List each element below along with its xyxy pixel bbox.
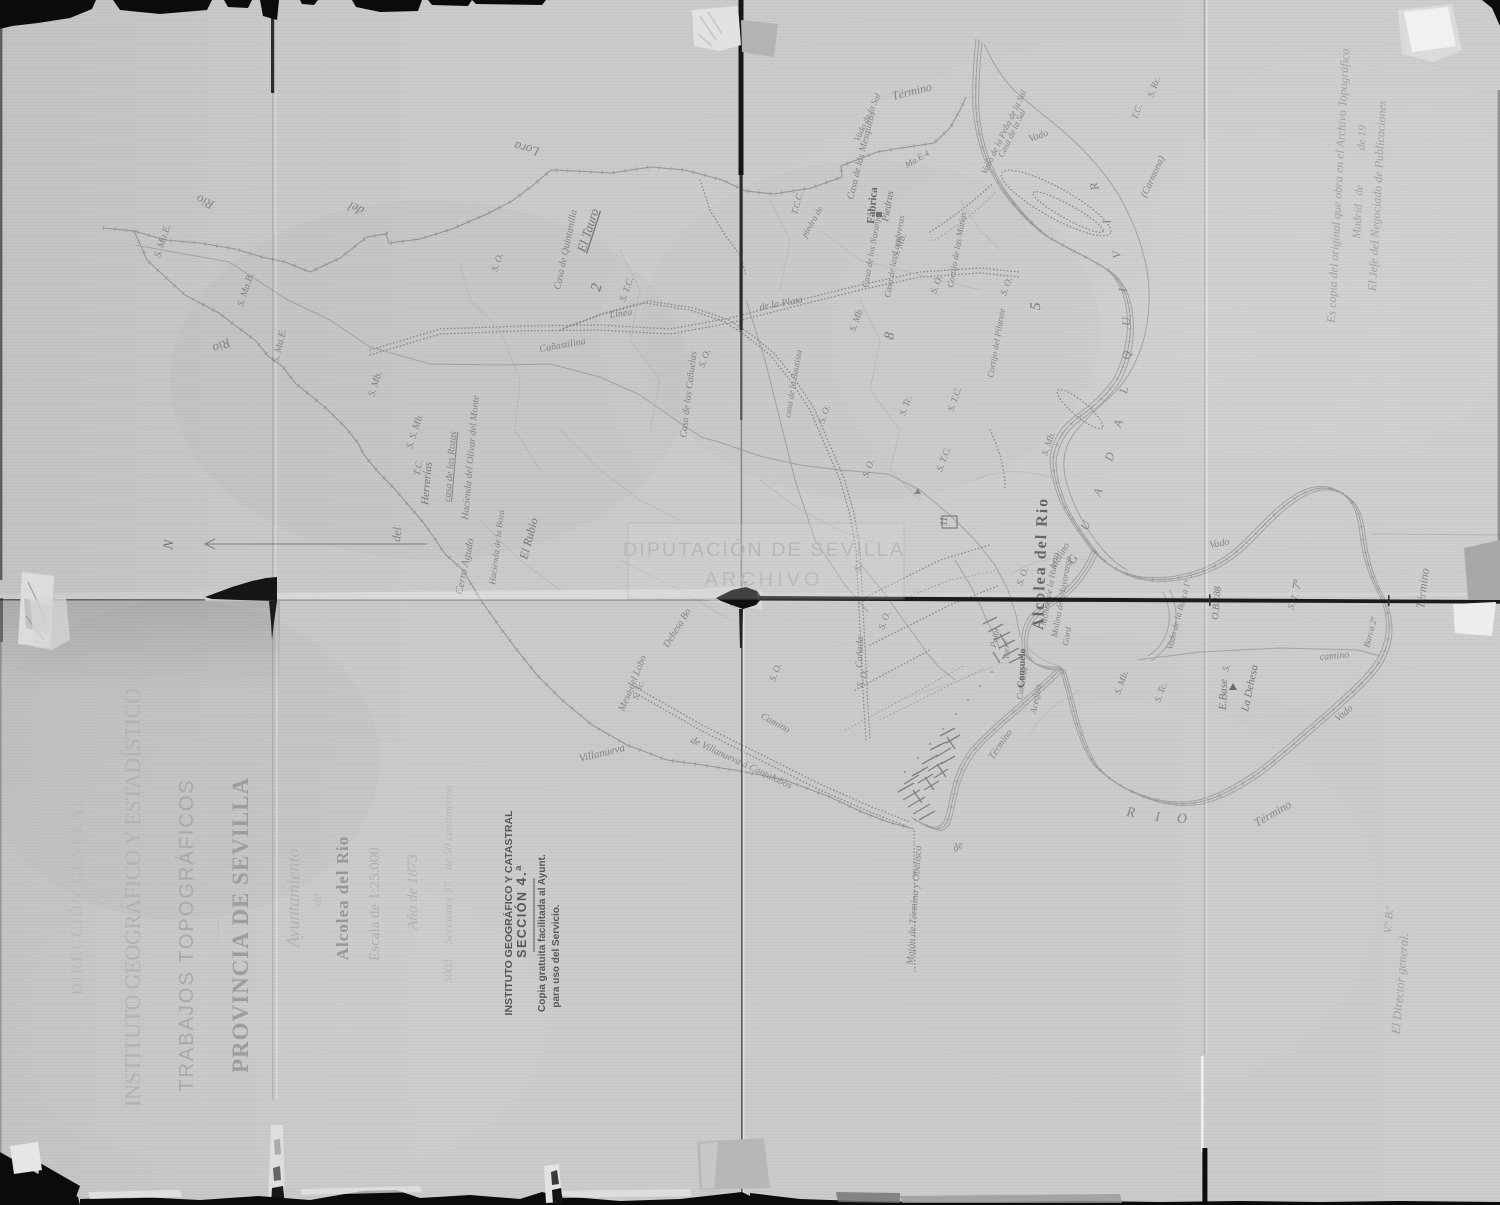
- svg-text:Término: Término: [890, 79, 933, 102]
- svg-text:Vado: Vado: [1027, 128, 1050, 145]
- svg-text:Vado: Vado: [1209, 537, 1231, 551]
- svg-text:Alcolea del Rio: Alcolea del Rio: [333, 836, 352, 961]
- svg-text:Consuelo: Consuelo: [1016, 648, 1028, 688]
- svg-text:de: de: [309, 894, 324, 907]
- svg-text:Ayuntamiento: Ayuntamiento: [283, 849, 303, 949]
- svg-text:para uso del Servicio.: para uso del Servicio.: [551, 904, 562, 1008]
- svg-text:Villanueva: Villanueva: [578, 742, 627, 765]
- svg-text:⁓⁓: ⁓⁓: [210, 916, 225, 944]
- svg-text:Q: Q: [1119, 350, 1134, 360]
- svg-text:T.C.: T.C.: [1130, 103, 1145, 121]
- svg-text:Gord: Gord: [1060, 626, 1073, 647]
- svg-text:S.: S.: [1221, 663, 1233, 673]
- svg-text:E.Base: E.Base: [1217, 679, 1230, 711]
- svg-text:Barca 2ª: Barca 2ª: [1361, 616, 1379, 649]
- svg-text:S. Tc.: S. Tc.: [1153, 681, 1169, 704]
- svg-text:O.B.188: O.B.188: [1210, 586, 1224, 620]
- svg-text:S. O.: S. O.: [855, 668, 871, 689]
- svg-text:Copia gratuita facilitada al A: Copia gratuita facilitada al Ayunt.: [537, 846, 548, 1012]
- svg-text:El Director general.: El Director general.: [1389, 933, 1412, 1036]
- svg-text:camino: camino: [1319, 649, 1349, 663]
- svg-text:V.º B.º: V.º B.º: [1382, 905, 1396, 934]
- svg-text:DE: DE: [95, 885, 110, 904]
- svg-text:S. O.: S. O.: [768, 662, 784, 683]
- svg-text:A: A: [1110, 418, 1126, 430]
- svg-text:INSTITUTO GEOGRÁFICO Y CATASTR: INSTITUTO GEOGRÁFICO Y CATASTRAL: [502, 810, 515, 1016]
- svg-text:S. Rc.: S. Rc.: [1146, 75, 1163, 99]
- svg-text:R: R: [1086, 180, 1102, 193]
- svg-text:La Dehesa: La Dehesa: [1239, 663, 1261, 713]
- svg-text:Dehesa Bo: Dehesa Bo: [661, 607, 694, 651]
- svg-text:DIRECCIÓN GENERAL: DIRECCIÓN GENERAL: [67, 795, 86, 995]
- svg-text:Rio: Rio: [193, 191, 217, 213]
- svg-text:INSTITUTO GEOGRÁFICO Y ESTADÍS: INSTITUTO GEOGRÁFICO Y ESTADÍSTICO: [120, 687, 145, 1107]
- svg-text:SECCIÓN 4.ª: SECCIÓN 4.ª: [513, 864, 529, 958]
- svg-text:ARCHIVO: ARCHIVO: [704, 569, 823, 591]
- svg-text:Año de 1873: Año de 1873: [405, 854, 421, 931]
- svg-text:11: 11: [939, 517, 950, 526]
- svg-text:S. O.: S. O.: [1015, 566, 1031, 587]
- svg-text:Camino: Camino: [759, 711, 792, 736]
- svg-text:V: V: [1109, 249, 1124, 259]
- svg-text:Vado: Vado: [1333, 703, 1355, 724]
- svg-text:Cañada: Cañada: [854, 636, 866, 668]
- svg-text:Lora: Lora: [512, 138, 542, 159]
- svg-text:L: L: [1116, 385, 1131, 395]
- svg-text:PROVINCIA DE SEVILLA: PROVINCIA DE SEVILLA: [228, 777, 253, 1073]
- svg-text:5003 Secciones 37 de 50: 5003 Secciones 37 de 50 centímetros: [441, 785, 455, 984]
- svg-text:Escala de 1:25.000: Escala de 1:25.000: [367, 847, 383, 961]
- svg-text:D: D: [1101, 450, 1117, 464]
- svg-text:I: I: [1099, 218, 1114, 227]
- svg-text:7ª: 7ª: [1289, 578, 1305, 590]
- svg-text:DIPUTACIÓN DE SEVILLA: DIPUTACIÓN DE SEVILLA: [623, 538, 905, 561]
- svg-text:Torre: Torre: [1001, 640, 1012, 660]
- svg-text:U: U: [1119, 316, 1133, 326]
- svg-text:N: N: [161, 538, 178, 551]
- svg-text:S. Mb.: S. Mb.: [1113, 670, 1131, 696]
- svg-text:A: A: [1089, 485, 1105, 499]
- svg-text:Vado de la Peña de la Sal: Vado de la Peña de la Sal: [979, 88, 1029, 176]
- svg-text:TRABAJOS TOPOGRÁFICOS: TRABAJOS TOPOGRÁFICOS: [175, 778, 198, 1092]
- svg-text:Vado de la Barca 1ª: Vado de la Barca 1ª: [1164, 579, 1192, 651]
- svg-text:Pajar: Pajar: [988, 626, 1002, 649]
- svg-text:S. O.: S. O.: [877, 610, 893, 631]
